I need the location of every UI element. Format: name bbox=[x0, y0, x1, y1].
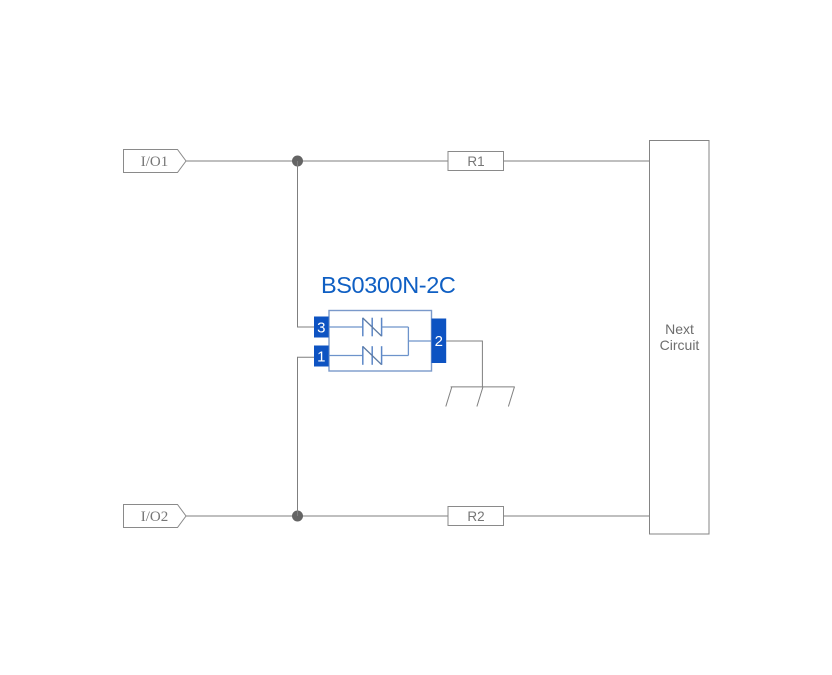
svg-text:I/O2: I/O2 bbox=[141, 509, 169, 525]
svg-text:3: 3 bbox=[317, 320, 325, 337]
svg-text:Circuit: Circuit bbox=[660, 337, 700, 353]
svg-text:R1: R1 bbox=[467, 154, 484, 169]
svg-text:BS0300N-2C: BS0300N-2C bbox=[321, 272, 456, 298]
svg-text:Next: Next bbox=[665, 321, 694, 337]
svg-text:I/O1: I/O1 bbox=[141, 154, 169, 170]
svg-text:1: 1 bbox=[317, 349, 325, 366]
svg-text:R2: R2 bbox=[467, 509, 484, 524]
svg-text:2: 2 bbox=[435, 333, 443, 350]
